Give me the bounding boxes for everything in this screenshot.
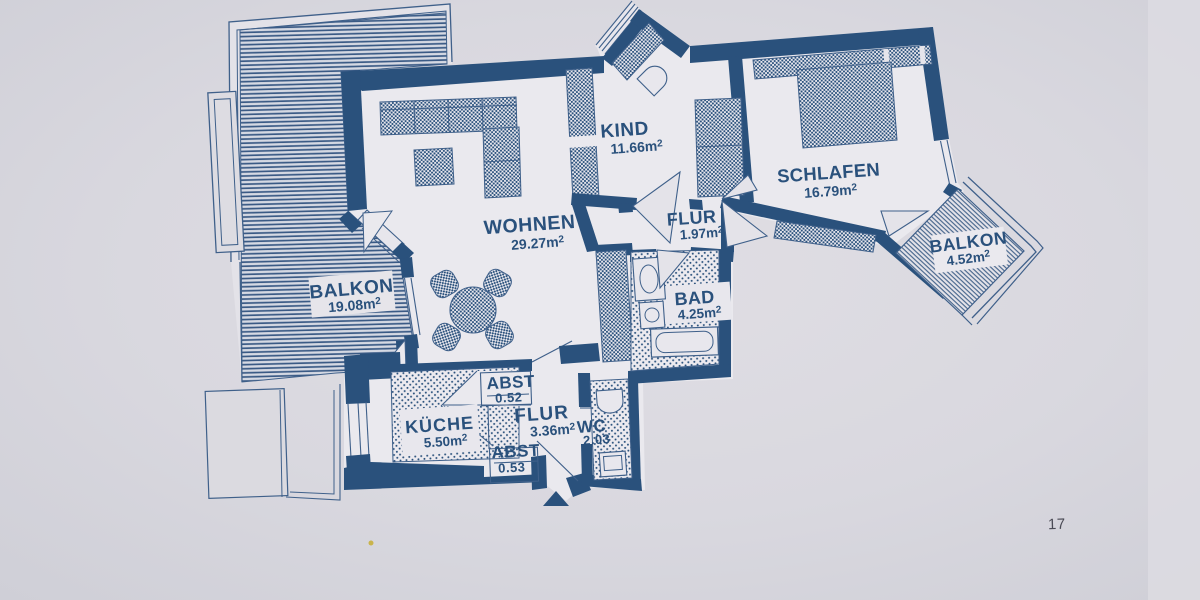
svg-text:0.53: 0.53 bbox=[498, 459, 526, 475]
svg-text:2.03: 2.03 bbox=[583, 431, 611, 448]
svg-text:0.52: 0.52 bbox=[495, 389, 523, 405]
svg-text:1.97m2: 1.97m2 bbox=[679, 224, 724, 242]
svg-text:17: 17 bbox=[1048, 516, 1066, 534]
svg-text:3.36m2: 3.36m2 bbox=[530, 420, 577, 439]
svg-text:5.50m2: 5.50m2 bbox=[423, 432, 468, 450]
svg-text:4.25m2: 4.25m2 bbox=[677, 304, 722, 322]
